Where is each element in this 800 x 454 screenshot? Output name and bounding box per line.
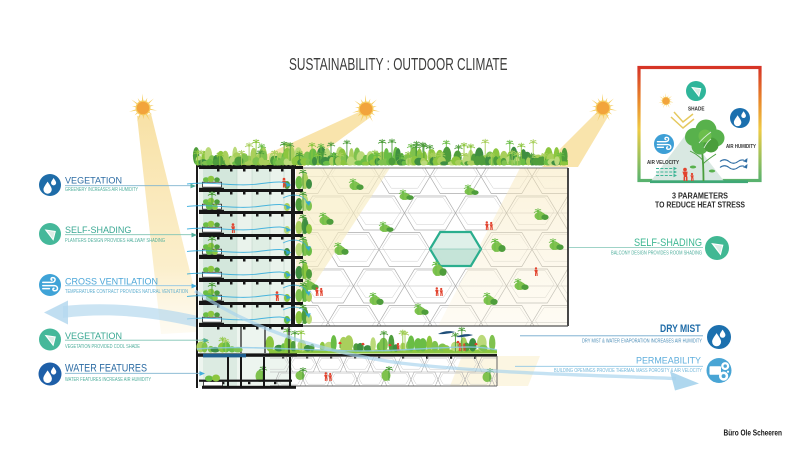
svg-text:VEGETATION: VEGETATION <box>65 330 122 341</box>
svg-text:AIR HUMIDITY: AIR HUMIDITY <box>726 144 756 150</box>
svg-text:VEGETATION PROVIDED COOL SHADE: VEGETATION PROVIDED COOL SHADE <box>65 344 140 350</box>
svg-text:TO REDUCE HEAT STRESS: TO REDUCE HEAT STRESS <box>655 201 745 210</box>
svg-text:SELF-SHADING: SELF-SHADING <box>634 237 702 249</box>
svg-text:GREENERY INCREASES AIR HUMIDIT: GREENERY INCREASES AIR HUMIDITY <box>65 187 138 193</box>
svg-text:TEMPERATURE CONTRACT PROVIDES: TEMPERATURE CONTRACT PROVIDES NATURAL VE… <box>65 289 188 295</box>
svg-text:Büro Ole Scheeren: Büro Ole Scheeren <box>724 428 783 438</box>
svg-text:WATER FEATURES: WATER FEATURES <box>65 363 147 375</box>
svg-text:AIR VELOCITY: AIR VELOCITY <box>647 160 679 166</box>
svg-text:VEGETATION: VEGETATION <box>65 174 122 185</box>
svg-text:BUILDING OPENINGS PROVIDE THER: BUILDING OPENINGS PROVIDE THERMAL MASS P… <box>554 368 702 374</box>
svg-text:BALCONY DESIGN PROVIDES ROOM S: BALCONY DESIGN PROVIDES ROOM SHADING <box>611 251 702 257</box>
svg-text:SUSTAINABILITY : OUTDOOR CLIMA: SUSTAINABILITY : OUTDOOR CLIMATE <box>289 54 508 74</box>
svg-text:PERMEABILITY: PERMEABILITY <box>636 355 702 366</box>
svg-text:WATER FEATURES INCREASE AIR HU: WATER FEATURES INCREASE AIR HUMIDITY <box>65 377 151 383</box>
svg-text:3 PARAMETERS: 3 PARAMETERS <box>672 192 728 201</box>
svg-text:DRY MIST & WATER EVAPORATION I: DRY MIST & WATER EVAPORATION INCREASES A… <box>582 339 702 345</box>
svg-text:SHADE: SHADE <box>688 107 705 113</box>
svg-text:PLANTERS DESIGN PROVIDES HALLW: PLANTERS DESIGN PROVIDES HALLWAY SHADING <box>65 238 165 244</box>
svg-text:DRY MIST: DRY MIST <box>660 323 701 335</box>
